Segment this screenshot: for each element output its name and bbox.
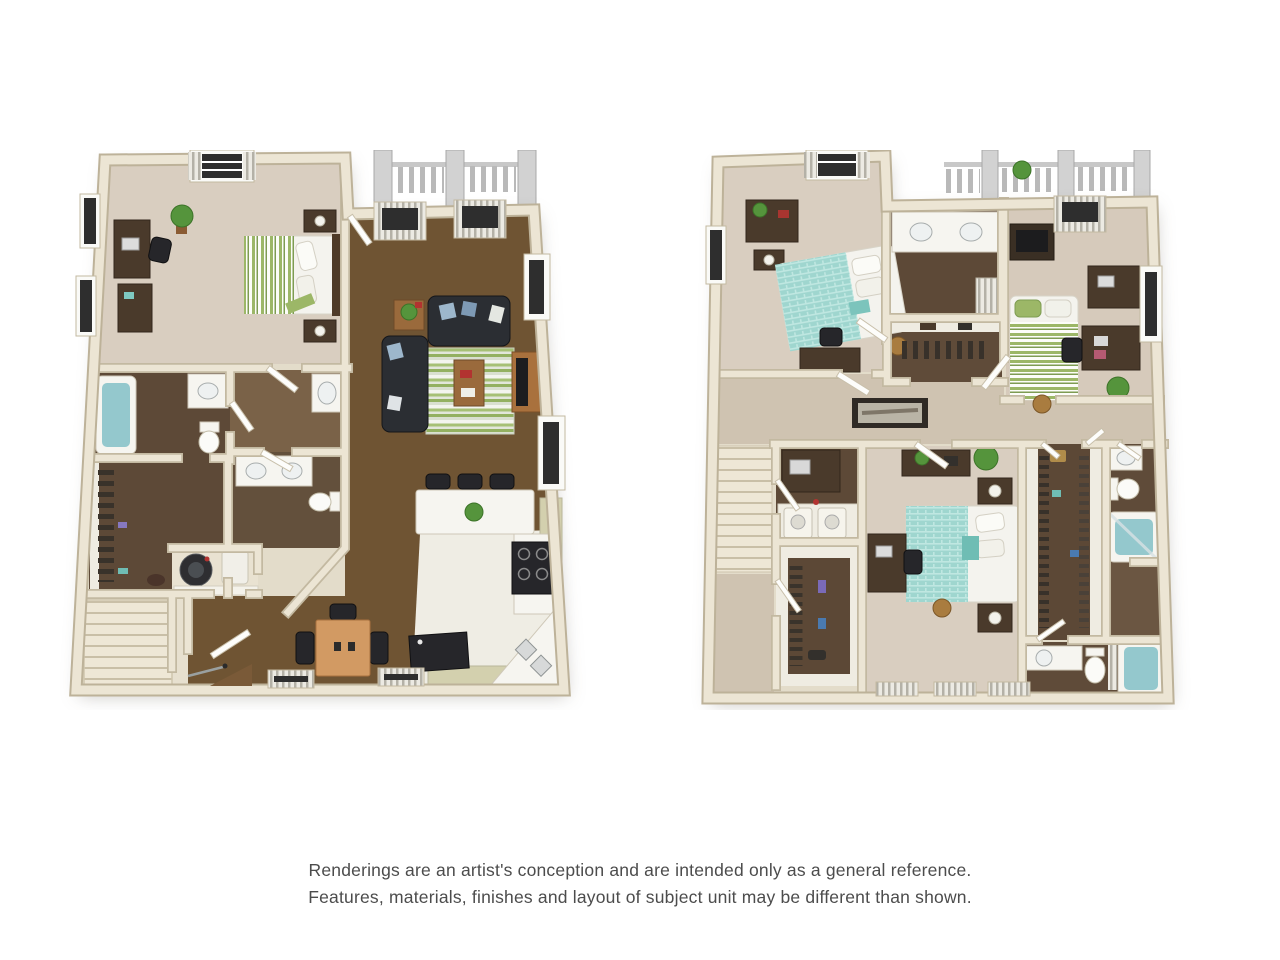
coffee-table [454,360,484,406]
table-item [334,642,341,651]
shelf [902,450,970,476]
bag [808,650,826,660]
stairs [712,446,772,572]
bar-stool[interactable] [458,474,482,489]
toilet-tank [330,492,340,511]
closet-item [920,322,936,330]
window-curtained [934,682,976,696]
sink-basin [198,383,218,399]
bed-pillow [1045,300,1071,317]
lamp [764,255,774,265]
plant [171,205,193,227]
shoes [147,574,165,586]
desk-chair[interactable] [904,550,922,574]
toilet [309,493,331,511]
bath-corridor-floor [1108,562,1162,640]
desk-chair[interactable] [820,328,842,346]
toilet [1085,657,1105,683]
desk [1082,326,1140,370]
disclaimer: Renderings are an artist's conception an… [0,857,1280,911]
dining-chair[interactable] [296,632,314,664]
bed-pillow [1015,300,1041,317]
disclaimer-line-2: Features, materials, finishes and layout… [0,884,1280,911]
plant [465,503,483,521]
page: Renderings are an artist's conception an… [0,0,1280,960]
umbrella-handle [223,664,228,669]
fridge-handle [418,640,423,645]
balcony-rail-bar [944,162,1150,167]
washer-drum [188,562,204,578]
plant [753,203,767,217]
disclaimer-line-1: Renderings are an artist's conception an… [0,857,1280,884]
clothes-item [818,580,826,593]
stove [512,542,554,594]
balcony-pillar [446,150,464,208]
desk-item [1094,350,1106,359]
bed-blanket [775,252,861,351]
toilet [199,431,219,453]
desk-chair [148,236,173,264]
sink-basin [318,382,336,404]
bed-pillow [975,512,1005,533]
landing-floor [710,574,774,694]
bath-mat [1108,644,1117,690]
dresser-item [778,210,789,218]
dryer-door [825,515,839,529]
desk-chair[interactable] [1062,338,1082,362]
bag [1033,395,1051,413]
sink-basin [246,463,266,479]
dresser [118,284,152,332]
dresser-item [124,292,134,299]
dining-chair[interactable] [370,632,388,664]
toilet [1117,479,1139,499]
plant [401,304,417,320]
curtain [804,152,817,178]
desk-item [1094,336,1108,346]
hall-vanity [312,374,342,412]
plant [974,446,998,470]
sink-basin [910,223,932,241]
balcony-pillar [1134,150,1150,202]
window-glass [202,154,242,178]
desk [800,348,860,372]
lamp [315,216,325,226]
laptop [1098,276,1114,287]
balcony-pillar [374,150,392,210]
clothes-item [118,568,128,574]
clothes-item [118,522,127,528]
clothes-item [818,618,826,629]
dining-chair[interactable] [330,604,356,620]
washer-door [791,515,805,529]
hallway [852,398,928,428]
laptop [122,238,139,250]
sofa-pillow [439,302,457,320]
dining-table [316,620,370,676]
refrigerator [409,632,469,672]
stairs [84,600,172,688]
plant [1013,161,1031,179]
desk [868,534,906,592]
balcony-pillar [518,150,536,206]
tv [1016,230,1048,252]
coffee-table-item [461,388,475,397]
lamp [989,612,1001,624]
clothes-item [1070,550,1079,557]
second-floor-plan [690,150,1230,710]
coffee-table-item [460,370,472,378]
lamp [315,326,325,336]
toilet-tank [1086,648,1104,656]
bathtub-water [102,383,130,447]
tv [516,358,528,406]
lamp [989,485,1001,497]
bed-pillow [975,539,1004,558]
bag [933,599,951,617]
closet-item [958,322,972,330]
bar-stool[interactable] [426,474,450,489]
bed-blanket [244,236,294,314]
curtain [243,152,256,180]
curtain [857,152,870,178]
sofa-pillow [387,395,402,411]
double-vanity [892,212,1000,252]
detergent [813,499,819,505]
vanity [1026,646,1082,670]
bathtub-water [1124,647,1158,690]
balcony-pillar [982,150,998,206]
laptop [876,546,892,557]
window-curtained [988,682,1030,696]
towel-rack [976,278,1000,316]
sink-basin [960,223,982,241]
laptop [790,460,810,474]
washer-dial [205,557,210,562]
table-item [348,642,355,651]
sofa-pillow [461,301,477,317]
bed-pillow [962,536,979,560]
bar-stool[interactable] [490,474,514,489]
window-curtained [876,682,918,696]
clothes-item [1052,490,1061,497]
first-floor-plan [60,150,620,710]
curtain [188,152,201,180]
sink-basin [1036,650,1052,666]
side-table-item [415,302,422,308]
toilet-tank [200,422,219,432]
